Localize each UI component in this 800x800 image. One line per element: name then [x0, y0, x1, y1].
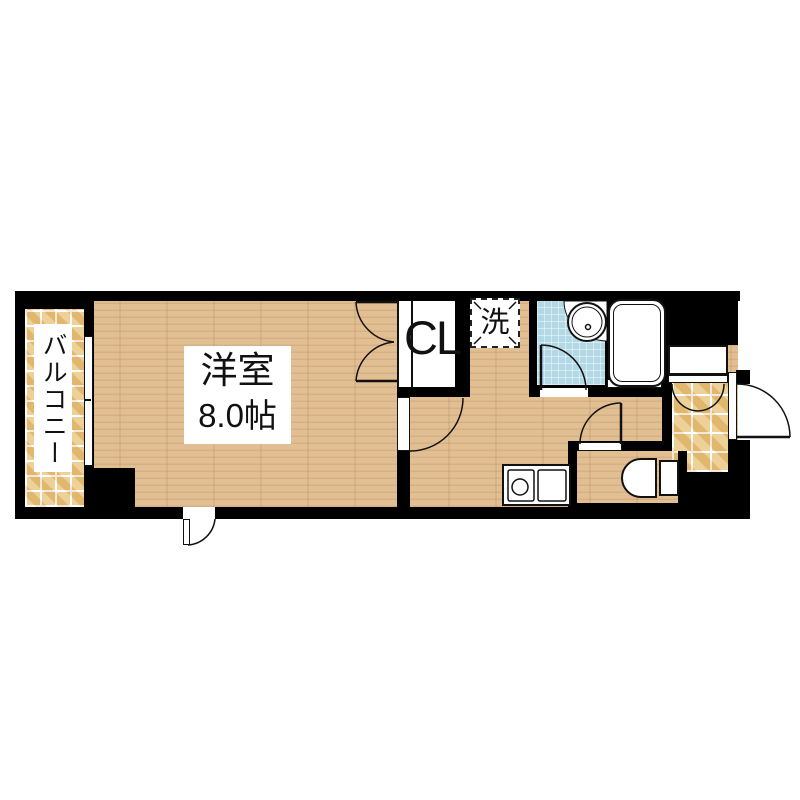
toilet	[622, 459, 678, 497]
bathtub	[609, 300, 665, 386]
cabinet-door-arc	[698, 384, 724, 411]
sink-drain	[512, 479, 528, 495]
toilet-tank	[660, 461, 678, 495]
main-room-size: 8.0帖	[184, 396, 291, 436]
faucet-dot	[586, 325, 591, 330]
fixtures-overlay	[0, 0, 800, 800]
main-room-name: 洋室	[184, 350, 291, 392]
kitchen-counter	[503, 465, 570, 505]
door-swing-arc	[410, 398, 463, 451]
door-swing-arc	[356, 302, 394, 342]
floorplan-canvas: 洋室 8.0帖 バルコニー CL 洗	[0, 0, 800, 800]
door-swing-arc	[737, 384, 790, 437]
door-swing-arc	[188, 519, 215, 545]
door-swing-arc	[541, 345, 586, 390]
door-swing-arc	[580, 403, 621, 444]
laundry-label: 洗	[478, 306, 512, 340]
kitchen-stove	[538, 470, 566, 501]
cabinet-door-arc	[672, 384, 698, 411]
toilet-bowl	[622, 459, 656, 497]
closet-label: CL	[404, 310, 460, 366]
balcony-label: バルコニー	[34, 326, 72, 472]
wash-basin	[564, 301, 607, 341]
door-swing-arc	[356, 342, 394, 381]
